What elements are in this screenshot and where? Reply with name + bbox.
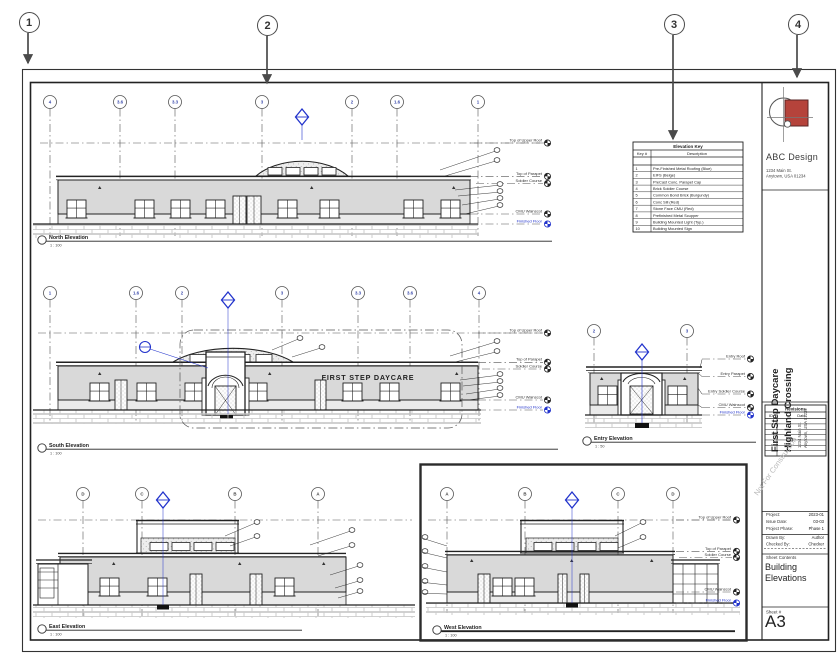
field-value: Phase 1 [809,526,825,531]
view-label-name: East Elevation [49,624,85,630]
elevation-key-num: 4 [636,186,639,191]
ground-hatch [33,605,415,618]
elevation-key-num: 5 [636,193,638,198]
project-name-line2: Highland Crossing [783,292,796,452]
level-label: Soldier Course [516,178,543,183]
elevation-key-desc: Brick Soldier Course [653,186,688,191]
elevation-key-num: 10 [636,226,641,231]
sheet-contents-label: Sheet Contents [766,555,797,560]
grid-label: D [81,492,84,497]
level-label: Top of Parapet [516,357,543,362]
drawing-rect [556,543,574,551]
building-sign: FIRST STEP DAYCARE [322,373,415,382]
level-label: Entry Soldier Course [708,388,746,393]
keynote-tag [357,578,363,583]
field-value: 2023-01 [809,512,825,517]
level-label: Finished Floor [720,409,746,414]
view-label-bubble [583,437,591,445]
drawing-rect [157,605,169,610]
ground-hatch [33,224,478,238]
keynote-tag [497,379,503,384]
elevation-key-col: Key # [637,151,648,156]
elevation-key-desc: Prefinished Metal Scupper [653,213,699,218]
elevation-key-num: 9 [636,220,638,225]
level-label: Top of Parapet [705,546,732,551]
drawing-rect [322,168,336,176]
drawing-rect [190,355,206,363]
grid-label: 1.6 [133,291,140,296]
keynote-tag [497,386,503,391]
grid-label: 1.6 [394,100,401,105]
keynote-tag [349,528,355,533]
field-label: Project: [766,512,780,517]
view-label-name: North Elevation [49,235,88,241]
logo-dot [784,121,790,127]
grid-label: 3.6 [407,291,414,296]
field-label: Project Phase: [766,526,793,531]
grid-label: 3.6 [117,100,124,105]
grid-label: 3.3 [355,291,362,296]
callout-balloon-3: 3 [664,14,685,35]
keynote-tag [494,148,500,153]
keynote-tag [640,520,646,525]
elevation-key-desc: Building Mounted Sign [653,226,692,231]
sheet: 43.63.3321.61Top of Upper RoofTop of Par… [0,0,838,662]
level-label: CMU Wainscot [718,402,745,407]
level-label: CMU Wainscot [515,208,542,213]
keynote-tag [297,336,303,341]
keynote-tag [494,158,500,163]
side-wing [38,564,88,605]
callout-number: 3 [671,19,677,31]
level-label: CMU Wainscot [515,394,542,399]
keynote-tag [497,189,503,194]
level-label: Top of Upper Roof [510,137,543,142]
view-label-scale: 1 : 100 [50,633,62,637]
grid-label: 3.3 [172,100,179,105]
grid-label: B [233,492,236,497]
firm-name: ABC Design [766,152,818,162]
drawing-rect [578,543,596,551]
keynote-tag [357,589,363,594]
project-address: 1234 Main St. [797,422,802,448]
drawing-rect [172,543,190,551]
elevation-key-desc: Building Mounted Light (Typ.) [653,220,704,225]
keynote-tag [254,534,260,539]
level-label: Soldier Course [705,552,732,557]
project-title: First Step Daycare Highland Crossing [770,292,795,452]
view-label-name: Entry Elevation [594,436,633,442]
view-label-name: South Elevation [49,443,89,449]
keynote-tag [497,393,503,398]
drawing-rect [194,543,212,551]
callout-balloon-4: 4 [788,14,809,35]
view-label-scale: 1 : 50 [595,445,605,449]
elevation-key-desc: EIFS (Beige) [653,173,676,178]
level-label: Top of Parapet [516,171,543,176]
field-value: Author [812,535,825,540]
field-label: Drawn By: [766,535,785,540]
keynote-tag [640,535,646,540]
keynote-tag [422,590,428,595]
view-label-scale: 1 : 100 [50,452,62,456]
keynote-tag [494,339,500,344]
firm-address: Anytown, USA 01234 [766,174,806,179]
field-value: Checker [808,542,824,547]
field-label: Checked By: [766,542,790,547]
keynote-tag [422,535,428,540]
grid-label: D [671,492,674,497]
keynote-tag [357,563,363,568]
project-name-line1: First Step Daycare [770,292,783,452]
grid-label: B [523,492,526,497]
level-label: Entry Parapet [721,371,746,376]
level-label: Soldier Course [516,363,543,368]
drawing-rect [566,603,578,608]
level-label: Top of Upper Roof [510,327,543,332]
keynote-tag [497,182,503,187]
view-label-bubble [433,626,441,634]
sheet-number: A3 [765,612,786,632]
drawing-rect [150,543,168,551]
elevation-key-num: 3 [636,179,638,184]
drawing-rect [286,168,300,176]
keynote-tag [497,203,503,208]
drawing-rect [534,543,552,551]
keynote-tag [349,543,355,548]
keynote-tag [319,345,325,350]
elevation-key-col: Description [687,151,707,156]
level-label: Finished Floor [706,597,732,602]
elevation-key-num: 7 [636,206,638,211]
sheet-drawing: 43.63.3321.61Top of Upper RoofTop of Par… [0,0,838,662]
elevation-key-num: 2 [636,173,638,178]
level-label: Entry Roof [726,353,746,358]
elevation-key-num: 6 [636,199,638,204]
level-label: Finished Floor [517,404,543,409]
view-label-name: West Elevation [444,625,482,631]
level-label: CMU Wainscot [704,586,731,591]
elevation-key-title: Elevation Key [673,144,703,149]
callout-balloon-2: 2 [257,15,278,36]
ground-hatch [33,410,481,424]
elevation-key-desc: Stone Face CMU (Red) [653,206,694,211]
drawing-rect [216,543,234,551]
view-label-scale: 1 : 100 [50,244,62,248]
callout-number: 2 [264,20,270,32]
view-label-bubble [38,236,46,244]
elevation-key-desc: Conc Sill (Red) [653,199,680,204]
keynote-tag [497,196,503,201]
elevation-key-num: 8 [636,213,638,218]
elevation-key-desc: PreCast Conc. Parapet Cap [653,179,701,184]
keynote-tag [494,349,500,354]
level-label: Top of Upper Roof [699,514,732,519]
sheet-contents: Building Elevations [765,562,823,583]
level-label: Finished Floor [517,218,543,223]
view-label-scale: 1 : 100 [445,634,457,638]
drawing-rect [600,543,618,551]
field-value: 03-03 [813,519,824,524]
keynote-tag [254,520,260,525]
elevation-key-desc: Pre-Finished Metal Roofing (Blue) [653,166,712,171]
firm-address: 1234 Main St. [766,168,792,173]
drawing-rect [635,423,649,428]
drawing-rect [256,355,272,363]
callout-number: 4 [795,19,801,31]
drawing-rect [268,168,282,176]
view-label-bubble [38,625,46,633]
view-label-bubble [38,444,46,452]
revisions-col: Date [797,413,806,418]
callout-balloon-1: 1 [19,12,40,33]
elevation-key-num: 1 [636,166,638,171]
elevation-key-desc: Common Bond Brick (Burgundy) [653,193,710,198]
field-label: Issue Date: [766,519,787,524]
callout-number: 1 [26,17,32,29]
keynote-tag [497,372,503,377]
ground-hatch [426,603,740,615]
drawing-rect [304,168,318,176]
